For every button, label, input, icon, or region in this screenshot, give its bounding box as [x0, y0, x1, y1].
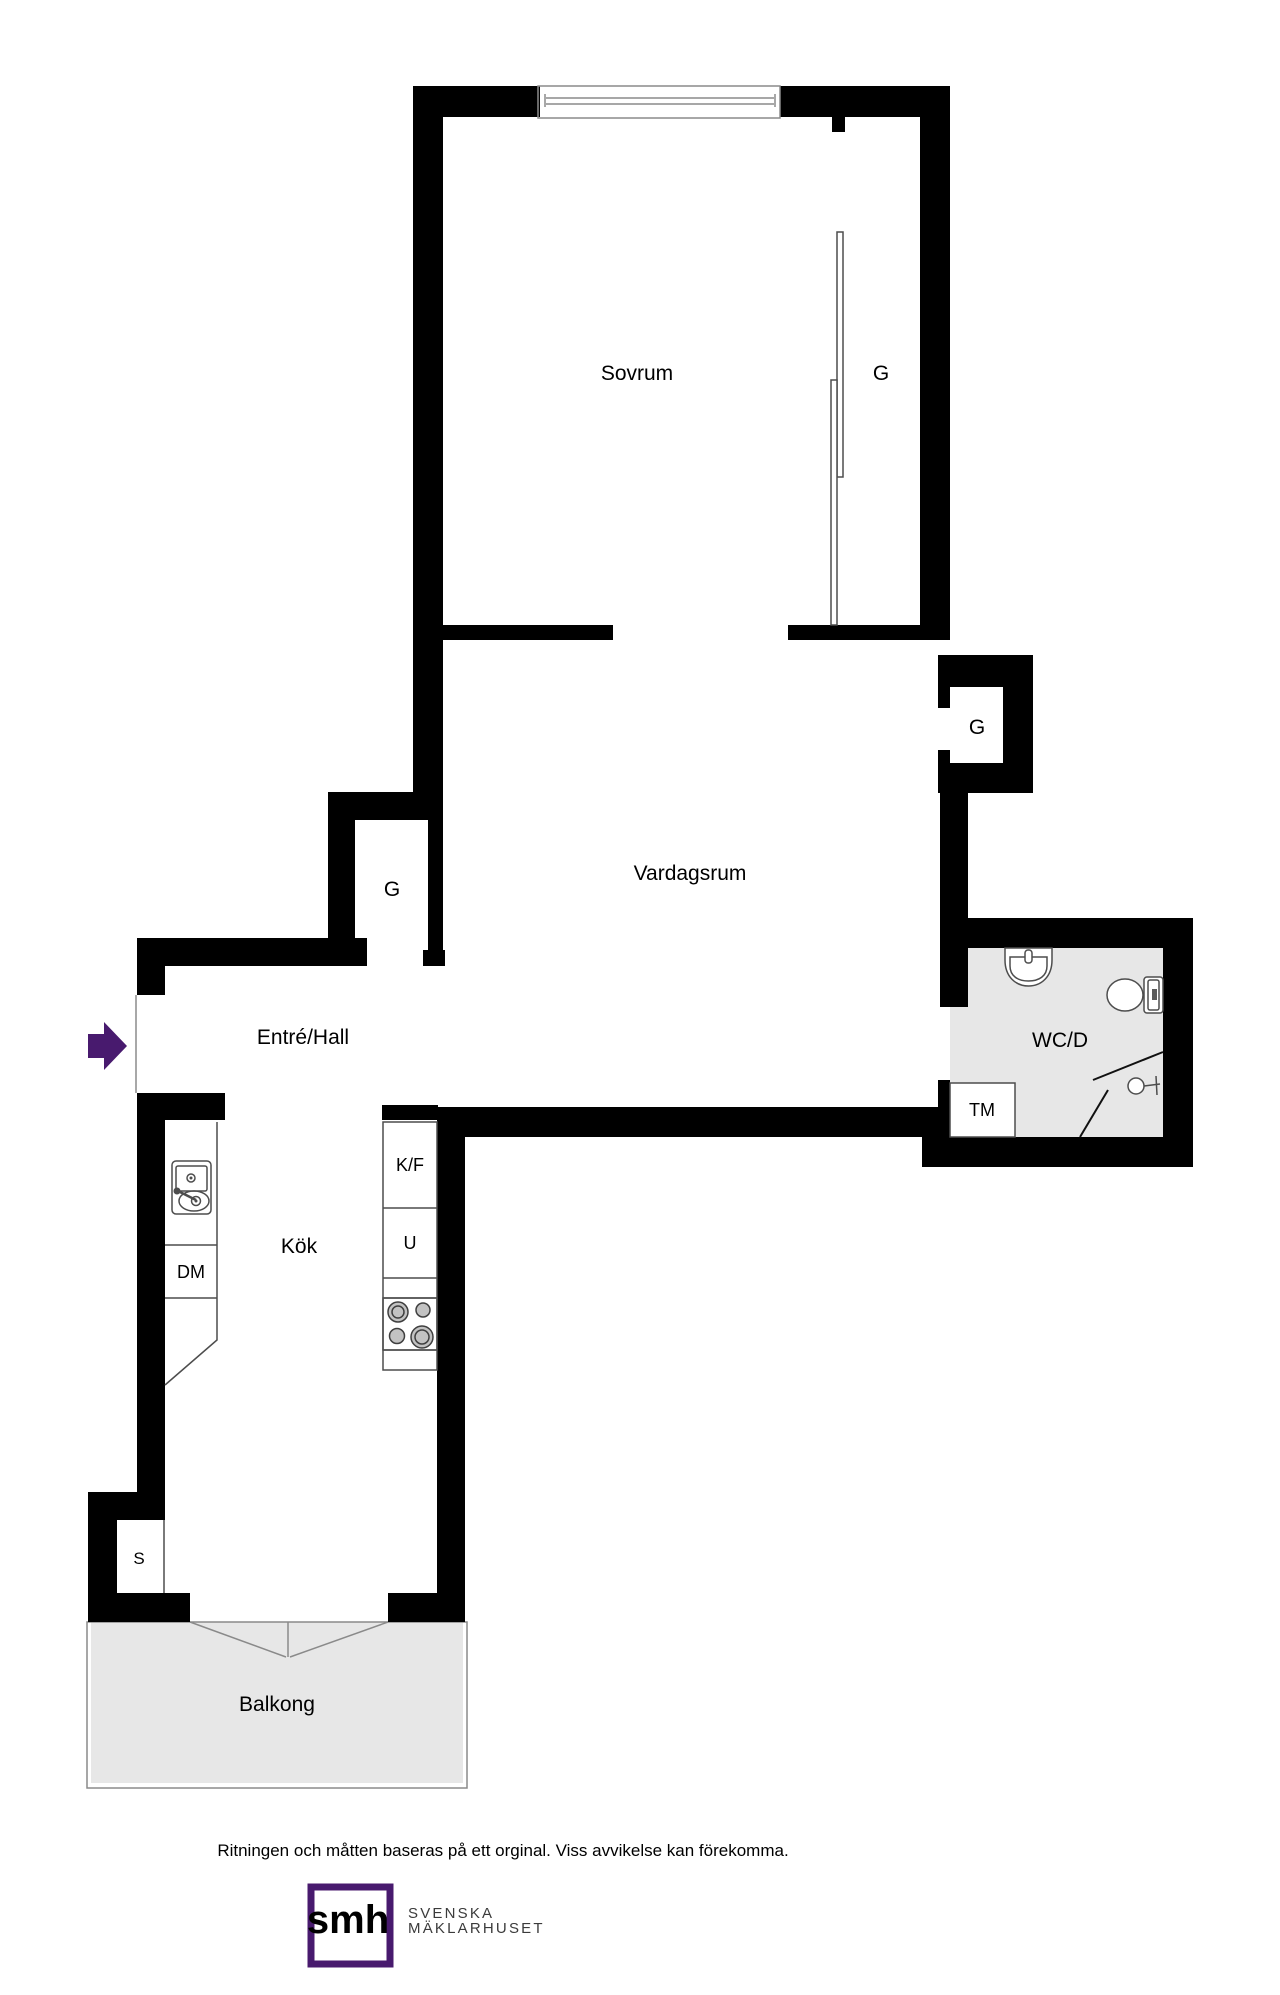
living-room-label: Vardagsrum — [634, 862, 747, 885]
wall-segment — [428, 820, 443, 952]
wall-segment — [788, 625, 950, 640]
walls — [88, 86, 1193, 1622]
fridge-freezer-label: K/F — [396, 1155, 424, 1175]
wall-segment — [832, 117, 845, 132]
bedroom-wardrobe-label: G — [873, 362, 889, 385]
bathroom-sink-icon — [1005, 948, 1052, 986]
disclaimer-text: Ritningen och måtten baseras på ett orgi… — [217, 1841, 788, 1860]
wall-segment — [940, 793, 968, 1007]
entry-arrow-icon — [88, 1022, 127, 1070]
wall-segment — [137, 938, 367, 966]
wall-segment — [938, 655, 1033, 687]
wall-segment — [437, 1107, 465, 1622]
wall-segment — [967, 918, 1193, 948]
wall-segment — [165, 1093, 225, 1120]
kitchen-sink-icon — [172, 1161, 211, 1214]
kitchen-label: Kök — [281, 1235, 318, 1258]
wall-segment — [938, 763, 1003, 793]
living-wardrobe-label: G — [969, 716, 985, 739]
wall-segment — [1163, 948, 1193, 1167]
wall-segment — [780, 86, 950, 117]
company-logo: smh SVENSKA MÄKLARHUSET — [307, 1887, 545, 1964]
wall-segment — [922, 1137, 1193, 1167]
wall-segment — [137, 938, 165, 995]
hall-label: Entré/Hall — [257, 1026, 349, 1049]
washing-machine-label: TM — [969, 1100, 995, 1120]
wall-segment — [920, 117, 950, 640]
wall-segment — [413, 86, 540, 117]
hall-wardrobe-label: G — [384, 878, 400, 901]
cabinet-label: S — [133, 1549, 144, 1568]
floorplan-page: Sovrum G Vardagsrum G G Entré/Hall WC/D … — [0, 0, 1280, 1995]
wall-segment — [443, 625, 613, 640]
wall-segment — [438, 1107, 940, 1137]
wall-segment — [423, 950, 445, 966]
wall-segment — [938, 750, 950, 763]
sliding-door-icon — [831, 232, 843, 625]
floorplan-drawing: Sovrum G Vardagsrum G G Entré/Hall WC/D … — [0, 0, 1280, 1995]
wall-segment — [1003, 687, 1033, 793]
balcony-label: Balkong — [239, 1693, 315, 1716]
wall-segment — [382, 1105, 438, 1120]
logo-monogram: smh — [307, 1898, 389, 1942]
wall-segment — [938, 687, 950, 708]
bedroom-label: Sovrum — [601, 362, 673, 385]
wall-segment — [137, 1093, 165, 1492]
window-icon — [538, 86, 780, 118]
wall-segment — [413, 86, 443, 792]
logo-caption-line2: MÄKLARHUSET — [408, 1920, 545, 1937]
oven-label: U — [404, 1233, 417, 1253]
toilet-icon — [1107, 977, 1163, 1013]
dishwasher-label: DM — [177, 1262, 205, 1282]
wall-segment — [328, 792, 443, 820]
wall-segment — [88, 1492, 165, 1520]
bathroom-label: WC/D — [1032, 1029, 1088, 1052]
wall-segment — [388, 1593, 437, 1622]
wall-segment — [88, 1593, 190, 1622]
stove-icon — [383, 1298, 437, 1350]
